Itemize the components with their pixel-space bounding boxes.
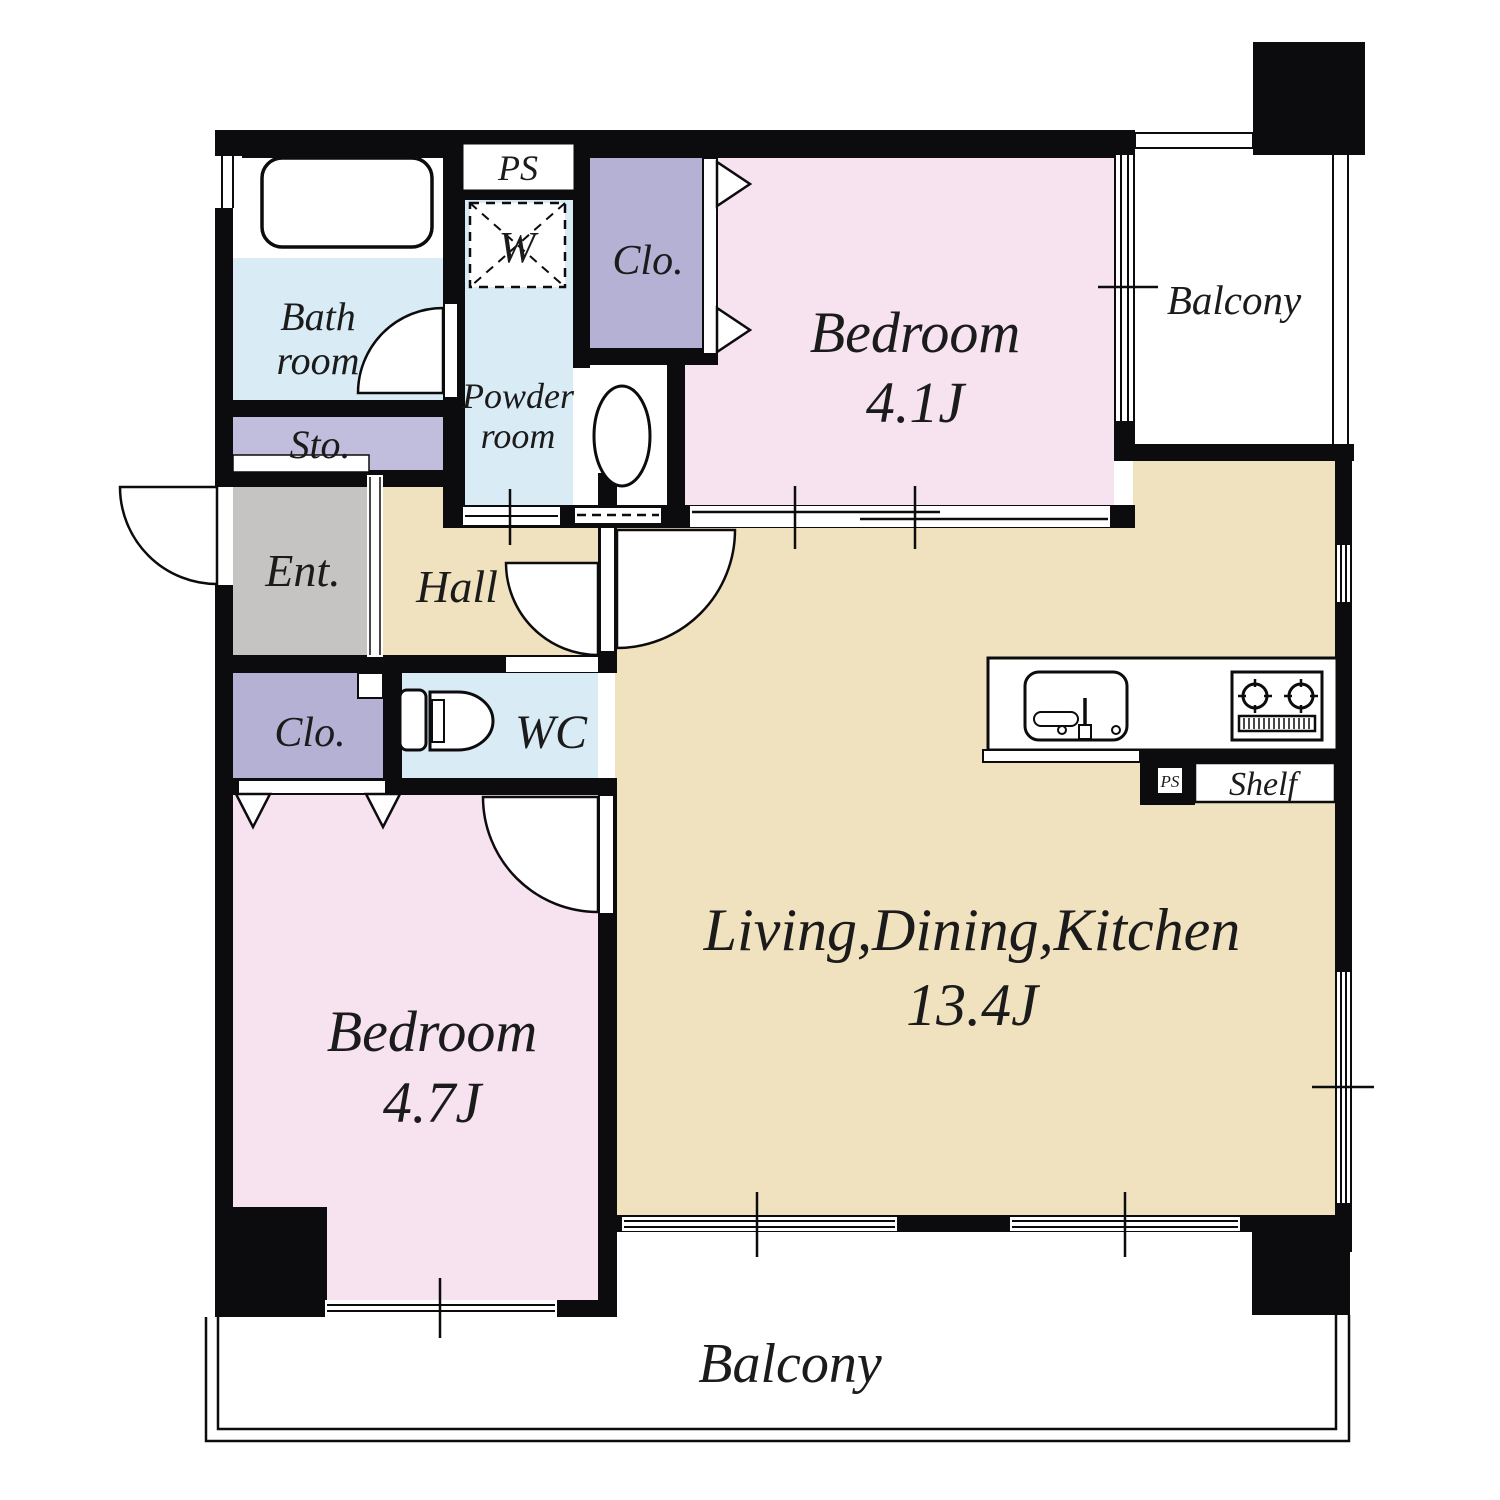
bedroom-bottom-door-leaf: [599, 795, 614, 914]
ldk-bottom-window-left: [622, 1217, 897, 1231]
closet-upper-label: Clo.: [612, 238, 683, 284]
wc-doorway: [506, 657, 598, 672]
basin-oval: [594, 386, 650, 486]
bedroom-top-area: 4.1J: [866, 370, 968, 435]
bathtub: [262, 158, 432, 247]
kitchen-faucet-base: [1079, 725, 1091, 739]
closet-lower-folding-door-track: [238, 780, 386, 794]
wall-top-balcony-bottom: [1114, 444, 1354, 461]
storage-label: Sto.: [289, 422, 350, 467]
bedroom-top-label: Bedroom: [810, 300, 1020, 365]
closet-upper-folding-door-track: [703, 158, 717, 354]
bathroom-window: [213, 156, 242, 208]
pillar-top-right: [1253, 42, 1365, 155]
wall-nook-top: [573, 348, 718, 365]
kitchen-sink-drain-left: [1058, 726, 1066, 734]
floor-plan-page: Bedroom 4.1J Bedroom 4.7J Living,Dining,…: [0, 0, 1500, 1500]
closet-lower-label: Clo.: [274, 710, 345, 756]
bathroom-label-line1: Bath: [280, 294, 356, 339]
floor-plan: Bedroom 4.1J Bedroom 4.7J Living,Dining,…: [0, 0, 1500, 1500]
hall-label: Hall: [415, 561, 498, 612]
ldk-area: 13.4J: [906, 972, 1040, 1038]
kitchen-sink-drain-right: [1112, 726, 1120, 734]
powder-room-label-line2: room: [481, 416, 556, 456]
bedroom-top-sliding-door: [690, 506, 1110, 527]
wall-nook-right: [667, 363, 685, 513]
bedroom-bottom-label: Bedroom: [327, 999, 537, 1064]
bathroom-door-leaf: [444, 303, 458, 398]
basin-nook-folding-door: [575, 508, 661, 523]
balcony-top-label: Balcony: [1167, 277, 1302, 323]
wall-jog-notch: [358, 673, 383, 698]
bathroom-label-line2: room: [277, 338, 360, 383]
pipe-space-kitchen-label: PS: [1160, 772, 1180, 791]
wall-bath-bottom: [215, 400, 450, 417]
toilet-tank: [400, 690, 426, 750]
kitchen-counter-lip: [983, 750, 1140, 762]
balcony-bottom-label: Balcony: [698, 1333, 882, 1395]
ldk-door-leaf: [600, 527, 615, 652]
top-balcony-top-railing: [1135, 133, 1253, 148]
wall-left: [215, 130, 233, 1317]
pillar-bottom-right: [1252, 1215, 1350, 1315]
ldk-label: Living,Dining,Kitchen: [703, 897, 1241, 963]
bedroom-bottom-area: 4.7J: [383, 1070, 485, 1135]
ldk-right-window-upper: [1337, 545, 1350, 602]
wc-label: WC: [515, 706, 588, 759]
kitchen-sink-tray: [1034, 712, 1078, 726]
powder-room-label-line1: Powder: [461, 376, 575, 416]
entrance-label: Ent.: [264, 545, 340, 596]
top-balcony-right-railing: [1333, 152, 1348, 445]
washing-machine-label: W: [499, 223, 539, 272]
pillar-bottom-left: [218, 1207, 327, 1315]
pipe-space-top-label: PS: [497, 148, 538, 188]
wall-top: [215, 130, 1135, 158]
shelf-label: Shelf: [1229, 766, 1302, 803]
